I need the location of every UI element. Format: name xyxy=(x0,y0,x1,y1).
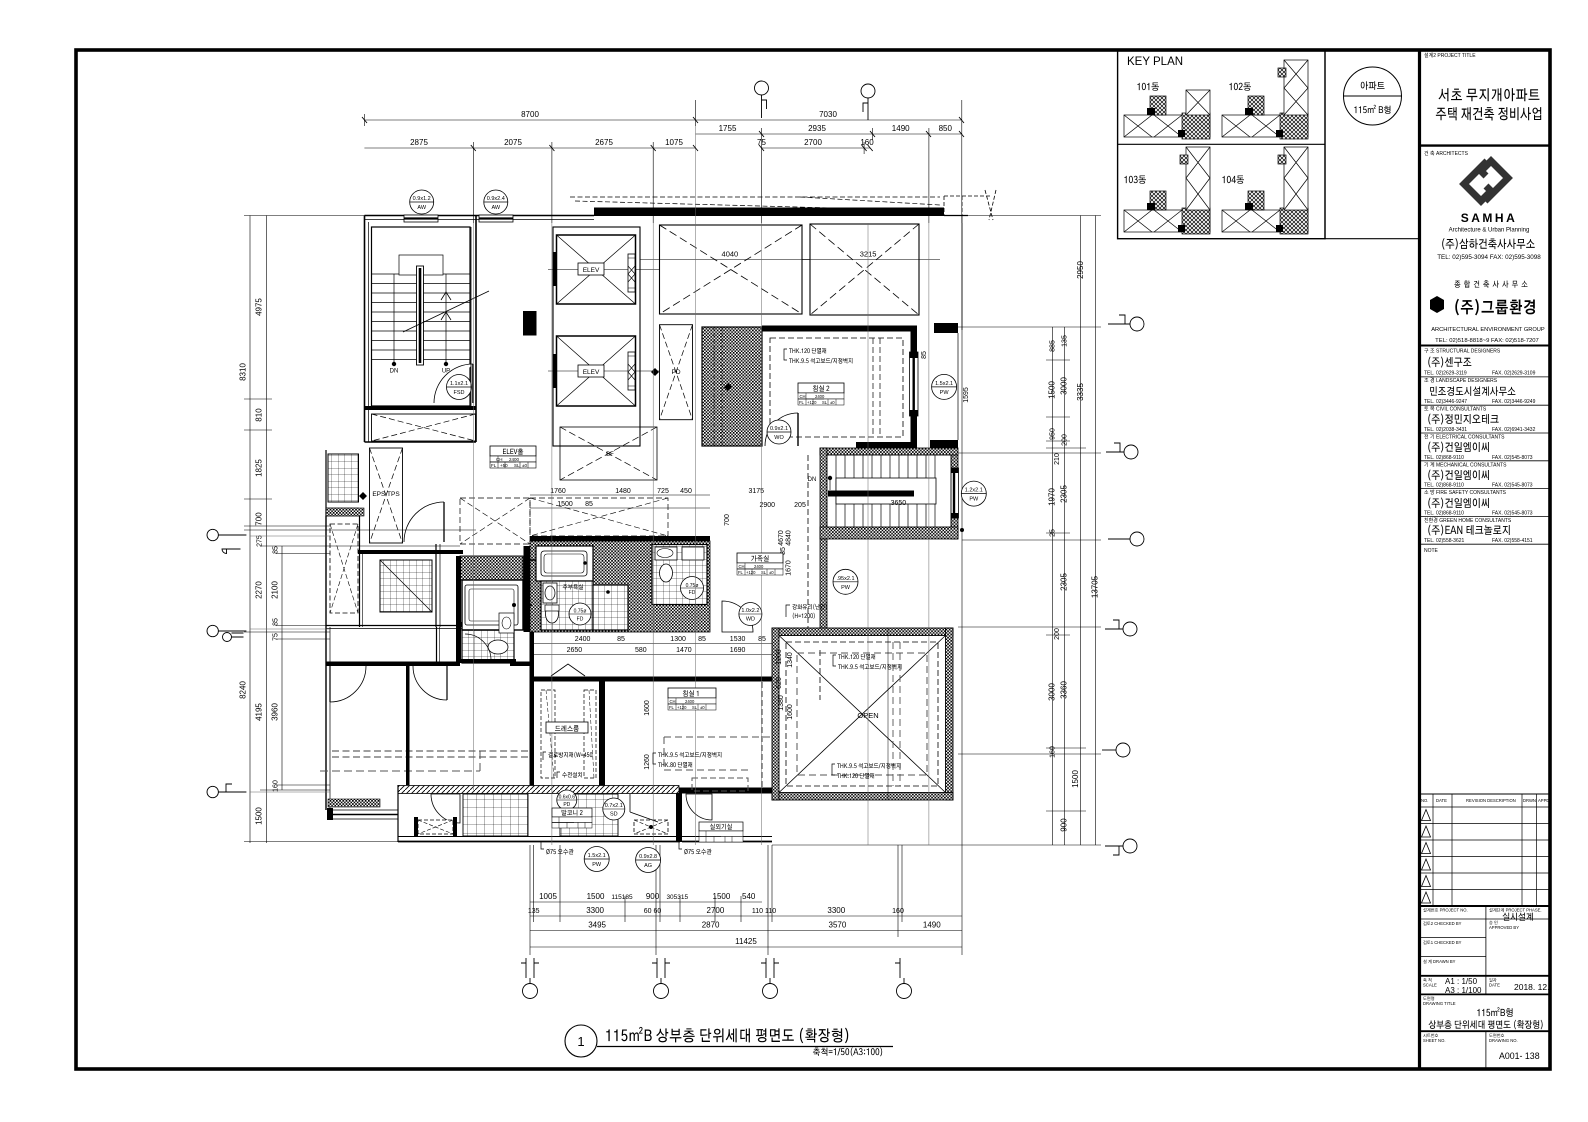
svg-text:SL: SL xyxy=(822,400,828,405)
svg-text:85: 85 xyxy=(273,618,280,626)
svg-text:설계번호 PROJECT NO.: 설계번호 PROJECT NO. xyxy=(1423,907,1468,914)
svg-text:3495: 3495 xyxy=(588,921,606,930)
svg-text:3960: 3960 xyxy=(271,703,280,721)
svg-text:1500: 1500 xyxy=(255,807,264,825)
svg-text:2400: 2400 xyxy=(754,564,764,569)
svg-text:2650: 2650 xyxy=(567,647,583,654)
svg-text:85: 85 xyxy=(698,636,706,643)
svg-text:1075: 1075 xyxy=(665,138,683,147)
svg-text:2700: 2700 xyxy=(804,138,822,147)
svg-text:EPS TPS: EPS TPS xyxy=(372,491,400,498)
svg-text:700: 700 xyxy=(255,512,264,526)
svg-text:3300: 3300 xyxy=(586,906,604,915)
svg-text:1260: 1260 xyxy=(644,754,651,770)
svg-text:950: 950 xyxy=(1050,428,1057,440)
svg-text:+120: +120 xyxy=(677,705,687,710)
svg-text:75: 75 xyxy=(757,138,766,147)
svg-text:TEL. 02)3446-9247: TEL. 02)3446-9247 xyxy=(1424,399,1467,405)
svg-text:4040: 4040 xyxy=(722,250,739,259)
svg-text:BF: BF xyxy=(606,452,614,458)
svg-text:205: 205 xyxy=(794,502,806,509)
svg-text:160: 160 xyxy=(1050,746,1057,758)
svg-text:1500: 1500 xyxy=(713,892,731,901)
svg-text:3570: 3570 xyxy=(829,921,847,930)
svg-text:조 경 LANDSCAPE DESIGNERS: 조 경 LANDSCAPE DESIGNERS xyxy=(1424,377,1498,384)
svg-text:1470: 1470 xyxy=(676,647,692,654)
svg-text:WD: WD xyxy=(746,617,755,623)
svg-text:900: 900 xyxy=(646,892,660,901)
svg-text:DATE: DATE xyxy=(1436,798,1447,803)
svg-text:설계2 PROJECT TITLE: 설계2 PROJECT TITLE xyxy=(1424,52,1476,59)
svg-text:8700: 8700 xyxy=(521,110,539,119)
svg-text:TEL. 02)558-3621: TEL. 02)558-3621 xyxy=(1424,538,1465,544)
svg-text:NO.: NO. xyxy=(1421,798,1428,803)
svg-text:160: 160 xyxy=(892,908,904,915)
svg-text:810: 810 xyxy=(255,408,264,422)
svg-text:PW: PW xyxy=(969,497,979,503)
svg-text:275: 275 xyxy=(257,535,264,547)
svg-text:검토2 CHECKED BY: 검토2 CHECKED BY xyxy=(1423,920,1462,926)
svg-text:CH: CH xyxy=(739,564,745,569)
svg-text:620: 620 xyxy=(776,677,783,689)
svg-text:기 계 MECHANICAL CONSULTANTS: 기 계 MECHANICAL CONSULTANTS xyxy=(1424,461,1507,468)
svg-text:FL: FL xyxy=(738,570,744,575)
svg-text:1: 1 xyxy=(577,1034,584,1049)
svg-text:1530: 1530 xyxy=(730,636,746,643)
svg-text:FAX. 02)2629-3109: FAX. 02)2629-3109 xyxy=(1492,371,1536,377)
svg-text:1690: 1690 xyxy=(730,647,746,654)
svg-text:60 60: 60 60 xyxy=(644,908,662,915)
svg-text:700: 700 xyxy=(724,514,731,526)
svg-text:Architecture & Urban Planning: Architecture & Urban Planning xyxy=(1449,228,1530,234)
svg-text:885: 885 xyxy=(1050,340,1057,352)
svg-text:3000: 3000 xyxy=(1060,377,1069,395)
svg-text:0.75ø: 0.75ø xyxy=(686,583,699,589)
svg-text:115185: 115185 xyxy=(611,894,633,901)
svg-text:1600: 1600 xyxy=(787,704,794,720)
svg-text:A1 : 1/50: A1 : 1/50 xyxy=(1445,977,1478,986)
svg-text:85: 85 xyxy=(617,636,625,643)
svg-text:FD: FD xyxy=(577,617,584,623)
svg-text:13705: 13705 xyxy=(1091,575,1100,598)
svg-text:2900: 2900 xyxy=(760,502,776,509)
svg-text:TEL. 02)868-9110: TEL. 02)868-9110 xyxy=(1424,483,1464,489)
svg-text:4195: 4195 xyxy=(255,703,264,721)
svg-text:+50: +50 xyxy=(500,463,508,468)
svg-text:±0: ±0 xyxy=(522,463,527,468)
svg-text:FAX. 02)545-8073: FAX. 02)545-8073 xyxy=(1492,483,1533,489)
svg-text:1.0x2.2: 1.0x2.2 xyxy=(741,608,759,614)
svg-text:1.5x2.1: 1.5x2.1 xyxy=(588,853,606,859)
svg-text:1490: 1490 xyxy=(892,124,910,133)
svg-text:TEL: 02)595-3094 FAX: 02)595: TEL: 02)595-3094 FAX: 02)595-3098 xyxy=(1437,254,1541,261)
svg-text:SL: SL xyxy=(761,570,767,575)
svg-text:0.9x2.4: 0.9x2.4 xyxy=(487,196,505,202)
svg-text:AG: AG xyxy=(644,863,652,869)
svg-text:3335: 3335 xyxy=(1076,383,1085,401)
svg-text:2870: 2870 xyxy=(702,921,720,930)
svg-text:200: 200 xyxy=(1054,628,1061,640)
svg-text:.95x2.1: .95x2.1 xyxy=(836,576,854,582)
svg-text:전 기 ELECTRICAL CONSULTANTS: 전 기 ELECTRICAL CONSULTANTS xyxy=(1424,434,1505,441)
svg-text:3360: 3360 xyxy=(1060,681,1069,699)
svg-text:검토1 CHECKED BY: 검토1 CHECKED BY xyxy=(1423,939,1462,945)
svg-text:DRWN: DRWN xyxy=(1523,798,1536,803)
svg-text:135: 135 xyxy=(1062,335,1069,347)
svg-text:±0: ±0 xyxy=(830,400,835,405)
svg-text:2935: 2935 xyxy=(808,124,826,133)
svg-text:PD: PD xyxy=(671,369,680,376)
svg-text:3175: 3175 xyxy=(749,488,765,495)
svg-text:0.9x2.1: 0.9x2.1 xyxy=(770,426,788,432)
svg-text:4975: 4975 xyxy=(255,298,264,316)
svg-text:25: 25 xyxy=(1050,529,1057,537)
svg-text:SCALE: SCALE xyxy=(1423,983,1437,988)
svg-text:DATE: DATE xyxy=(1489,983,1500,988)
svg-text:ELEV: ELEV xyxy=(583,369,600,376)
svg-text:TEL. 02)2038-3431: TEL. 02)2038-3431 xyxy=(1424,427,1467,433)
svg-text:설계단계 PROJECT PHASE.: 설계단계 PROJECT PHASE. xyxy=(1489,907,1542,914)
svg-text:135: 135 xyxy=(528,908,540,915)
svg-text:REVISION DESCRIPTION: REVISION DESCRIPTION xyxy=(1466,798,1516,803)
svg-text:FAX. 02)6941-3432: FAX. 02)6941-3432 xyxy=(1492,427,1536,433)
svg-text:540: 540 xyxy=(742,892,756,901)
svg-text:DRAWING TITLE: DRAWING TITLE xyxy=(1423,1001,1456,1006)
svg-text:1600: 1600 xyxy=(644,700,651,716)
svg-text:1480: 1480 xyxy=(615,488,631,495)
svg-text:±0: ±0 xyxy=(700,705,705,710)
svg-text:KEY PLAN: KEY PLAN xyxy=(1127,56,1183,68)
svg-text:구 조 STRUCTURAL DESIGNERS: 구 조 STRUCTURAL DESIGNERS xyxy=(1424,349,1501,355)
svg-text:0.6x0.6: 0.6x0.6 xyxy=(559,795,576,801)
svg-text:PW: PW xyxy=(592,862,602,868)
svg-text:1970: 1970 xyxy=(1048,488,1057,506)
svg-text:2075: 2075 xyxy=(504,138,522,147)
svg-text:1755: 1755 xyxy=(719,124,737,133)
svg-text:CH: CH xyxy=(800,394,806,399)
svg-text:DRAWING NO.: DRAWING NO. xyxy=(1489,1038,1518,1043)
svg-text:160: 160 xyxy=(273,780,280,792)
svg-text:TEL. 02)868-9110: TEL. 02)868-9110 xyxy=(1424,510,1464,516)
svg-text:1490: 1490 xyxy=(923,921,941,930)
svg-text:7030: 7030 xyxy=(819,110,837,119)
svg-text:1670: 1670 xyxy=(786,560,793,576)
svg-text:4670: 4670 xyxy=(778,530,785,546)
svg-text:TEL: 02)518-8818~9 FAX: 02)51: TEL: 02)518-8818~9 FAX: 02)518-7207 xyxy=(1435,338,1539,344)
svg-text:2400: 2400 xyxy=(685,699,695,704)
svg-text:2100: 2100 xyxy=(271,581,280,599)
svg-text:1.2x2.1: 1.2x2.1 xyxy=(965,488,983,494)
svg-text:FL: FL xyxy=(669,705,675,710)
svg-text:SHEET NO.: SHEET NO. xyxy=(1423,1038,1446,1043)
svg-text:1500: 1500 xyxy=(587,892,605,901)
svg-text:1500: 1500 xyxy=(557,501,573,508)
svg-text:TEL. 02)868-9110: TEL. 02)868-9110 xyxy=(1424,455,1464,461)
svg-text:1200: 1200 xyxy=(776,649,783,665)
svg-text:PD: PD xyxy=(563,802,570,808)
svg-text:2305: 2305 xyxy=(1060,485,1069,503)
svg-text:2400: 2400 xyxy=(509,457,520,462)
svg-text:0.9x1.2: 0.9x1.2 xyxy=(413,196,431,202)
svg-text:SL: SL xyxy=(692,705,698,710)
svg-text:PW: PW xyxy=(841,585,851,591)
svg-text:FAX. 02)545-8073: FAX. 02)545-8073 xyxy=(1492,510,1533,516)
svg-text:±0: ±0 xyxy=(769,570,774,575)
svg-text:NOTE: NOTE xyxy=(1424,548,1439,554)
svg-text:TEL. 02)2629-3119: TEL. 02)2629-3119 xyxy=(1424,371,1467,377)
svg-text:2875: 2875 xyxy=(410,138,428,147)
svg-text:1500: 1500 xyxy=(1071,770,1080,788)
svg-text:+120: +120 xyxy=(807,400,817,405)
svg-text:SAMHA: SAMHA xyxy=(1461,211,1518,225)
svg-text:2305: 2305 xyxy=(1060,573,1069,591)
svg-text:FL: FL xyxy=(799,400,805,405)
svg-text:8310: 8310 xyxy=(239,363,248,381)
svg-text:1300: 1300 xyxy=(670,636,686,643)
svg-text:110 110: 110 110 xyxy=(752,908,776,915)
svg-text:580: 580 xyxy=(635,647,647,654)
svg-text:소 방 FIRE SAFETY CONSULTANTS: 소 방 FIRE SAFETY CONSULTANTS xyxy=(1424,489,1507,496)
svg-text:305315: 305315 xyxy=(666,894,688,901)
svg-text:AW: AW xyxy=(417,205,426,211)
svg-text:2950: 2950 xyxy=(1076,261,1085,279)
svg-text:1760: 1760 xyxy=(550,488,566,495)
svg-text:85: 85 xyxy=(921,351,928,359)
svg-text:FSD: FSD xyxy=(454,390,465,396)
svg-text:4840: 4840 xyxy=(786,530,793,546)
svg-text:FAX. 02)558-4151: FAX. 02)558-4151 xyxy=(1492,538,1533,544)
svg-text:친환경 GREEN HOME CONSULTANTS: 친환경 GREEN HOME CONSULTANTS xyxy=(1424,517,1512,524)
svg-text:725: 725 xyxy=(657,488,669,495)
svg-text:FAX. 02)3446-9249: FAX. 02)3446-9249 xyxy=(1492,399,1536,405)
svg-text:설 계 DRAWN BY: 설 계 DRAWN BY xyxy=(1423,958,1456,965)
svg-text:AW: AW xyxy=(491,205,500,211)
svg-text:85: 85 xyxy=(585,501,593,508)
svg-text:건 축 ARCHITECTS: 건 축 ARCHITECTS xyxy=(1424,150,1469,157)
svg-text:2400: 2400 xyxy=(575,636,591,643)
svg-text:3000: 3000 xyxy=(1048,683,1057,701)
svg-text:85: 85 xyxy=(758,636,766,643)
svg-text:2400: 2400 xyxy=(815,394,825,399)
svg-text:2018. 12.: 2018. 12. xyxy=(1514,982,1549,992)
svg-text:200: 200 xyxy=(1062,434,1069,446)
svg-text:2675: 2675 xyxy=(595,138,613,147)
svg-text:1.5x2.1: 1.5x2.1 xyxy=(935,381,953,387)
svg-text:210: 210 xyxy=(1054,453,1061,465)
svg-text:0.7x2.1: 0.7x2.1 xyxy=(605,803,623,809)
svg-text:ARCHITECTURAL ENVIRONMENT GR: ARCHITECTURAL ENVIRONMENT GROUP xyxy=(1431,327,1545,333)
svg-text:DN: DN xyxy=(390,369,399,375)
svg-text:2270: 2270 xyxy=(255,581,264,599)
svg-text:850: 850 xyxy=(939,124,953,133)
svg-text:1595: 1595 xyxy=(963,387,970,403)
svg-text:PW: PW xyxy=(940,390,950,396)
svg-text:SD: SD xyxy=(610,812,618,818)
svg-text:FAX. 02)545-8073: FAX. 02)545-8073 xyxy=(1492,455,1533,461)
svg-text:CH: CH xyxy=(496,457,503,462)
svg-text:토 목 CIVIL CONSULTANTS: 토 목 CIVIL CONSULTANTS xyxy=(1424,407,1487,413)
svg-text:900: 900 xyxy=(1060,818,1069,832)
svg-text:1340: 1340 xyxy=(787,652,794,668)
svg-text:2700: 2700 xyxy=(707,906,725,915)
svg-text:0.75ø: 0.75ø xyxy=(574,609,587,615)
svg-text:1.1x2.1: 1.1x2.1 xyxy=(450,381,468,387)
svg-text:FD: FD xyxy=(689,590,696,596)
svg-text:ELEV: ELEV xyxy=(583,267,600,274)
svg-text:75: 75 xyxy=(273,633,280,641)
svg-text:1500: 1500 xyxy=(1048,381,1057,399)
svg-text:APPROVED BY: APPROVED BY xyxy=(1489,925,1519,930)
svg-text:11425: 11425 xyxy=(735,937,757,946)
svg-text:450: 450 xyxy=(680,488,692,495)
svg-text:0.9x2.8: 0.9x2.8 xyxy=(639,854,657,860)
svg-text:3300: 3300 xyxy=(827,906,845,915)
svg-text:FL: FL xyxy=(491,463,497,468)
svg-text:DN: DN xyxy=(808,477,817,483)
svg-text:A3 : 1/100: A3 : 1/100 xyxy=(1445,986,1482,995)
svg-text:SL: SL xyxy=(514,463,520,468)
svg-text:1005: 1005 xyxy=(539,892,557,901)
svg-text:8240: 8240 xyxy=(239,681,248,699)
svg-text:WO: WO xyxy=(774,435,784,441)
svg-text:CH: CH xyxy=(670,699,676,704)
svg-text:1825: 1825 xyxy=(255,459,264,477)
svg-text:+120: +120 xyxy=(746,570,756,575)
svg-text:85: 85 xyxy=(273,546,280,554)
svg-text:A001- 138: A001- 138 xyxy=(1499,1051,1540,1061)
svg-text:3650: 3650 xyxy=(891,500,907,507)
svg-text:APPD: APPD xyxy=(1538,798,1549,803)
svg-text:1380: 1380 xyxy=(778,695,785,711)
